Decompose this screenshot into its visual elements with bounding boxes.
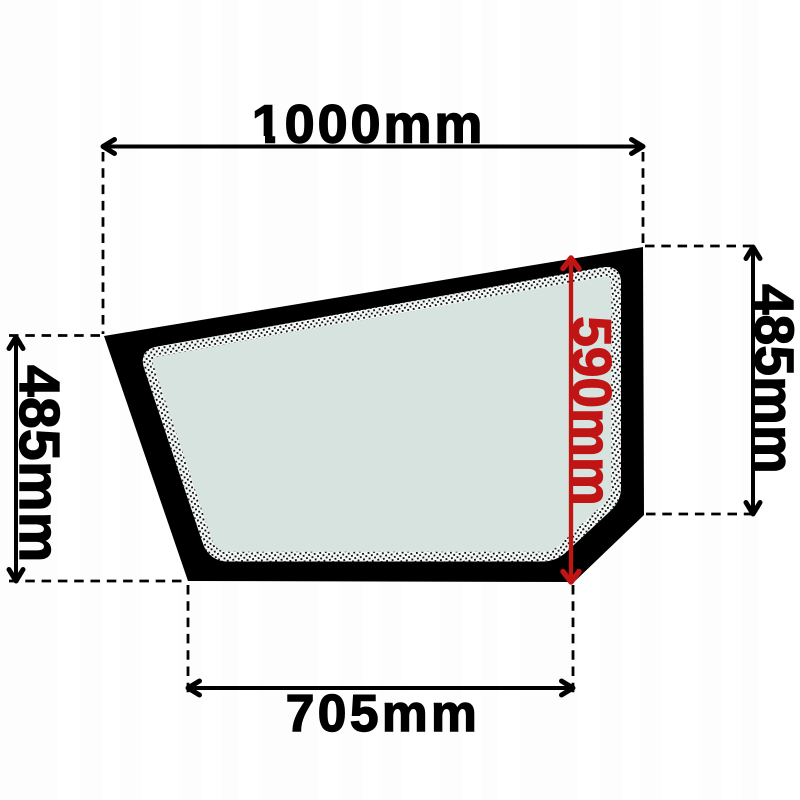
- svg-text:1000mm: 1000mm: [252, 95, 486, 155]
- svg-text:485mm: 485mm: [8, 365, 71, 563]
- svg-text:590mm: 590mm: [561, 316, 623, 506]
- svg-text:705mm: 705mm: [286, 684, 481, 742]
- svg-text:485mm: 485mm: [744, 284, 800, 474]
